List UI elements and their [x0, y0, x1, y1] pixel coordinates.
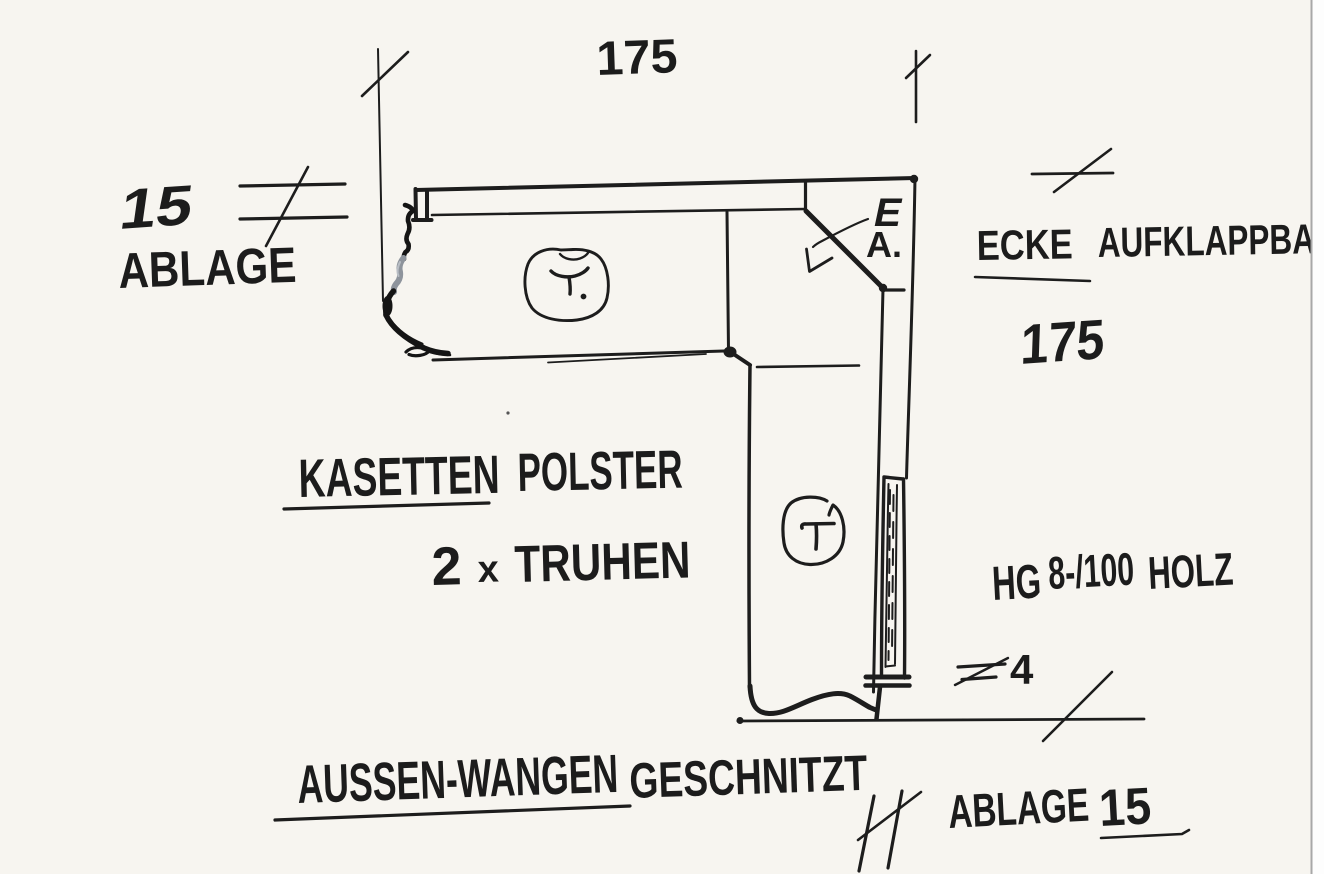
svg-text:GESCHNITZT: GESCHNITZT: [628, 745, 868, 809]
svg-text:4: 4: [1010, 646, 1034, 693]
svg-text:ECKE: ECKE: [976, 220, 1073, 269]
svg-text:15: 15: [116, 173, 197, 241]
svg-text:x: x: [477, 548, 499, 591]
svg-text:175: 175: [1020, 307, 1106, 376]
svg-text:2: 2: [431, 536, 463, 597]
svg-text:15: 15: [1098, 777, 1153, 838]
svg-text:175: 175: [596, 30, 679, 86]
svg-text:POLSTER: POLSTER: [517, 440, 683, 503]
svg-text:HOLZ: HOLZ: [1147, 543, 1235, 599]
svg-text:AUFKLAPPBAR: AUFKLAPPBAR: [1097, 215, 1324, 266]
svg-text:8-/100: 8-/100: [1047, 543, 1136, 599]
svg-text:AUSSEN-WANGEN: AUSSEN-WANGEN: [296, 744, 619, 815]
svg-text:TRUHEN: TRUHEN: [514, 531, 691, 594]
svg-text:ABLAGE: ABLAGE: [117, 237, 297, 299]
svg-text:A.: A.: [866, 224, 902, 265]
svg-text:KASETTEN: KASETTEN: [298, 445, 500, 509]
svg-text:HG: HG: [991, 555, 1043, 610]
svg-text:ABLAGE: ABLAGE: [947, 778, 1091, 838]
